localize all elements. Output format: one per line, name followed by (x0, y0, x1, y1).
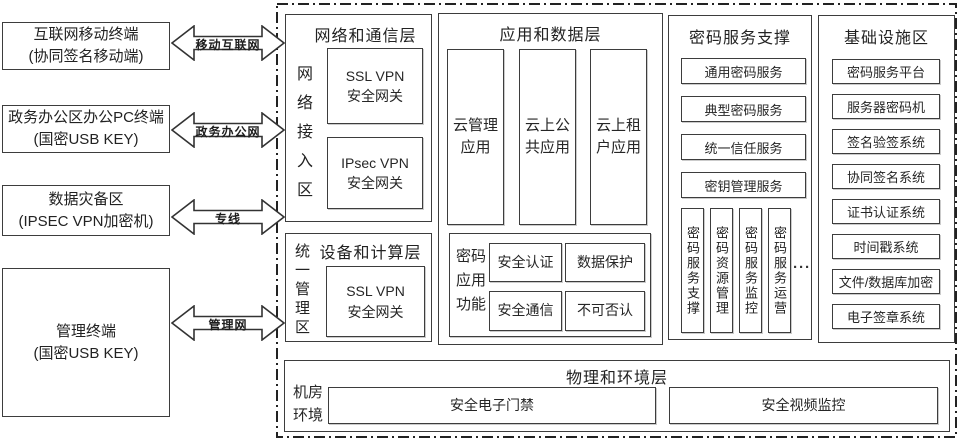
gateway-ssl-vpn: SSL VPN 安全网关 (327, 48, 423, 124)
service-general-crypto: 通用密码服务 (681, 58, 806, 84)
terminal-management: 管理终端 (国密USB KEY) (2, 268, 170, 417)
section-infrastructure-area: 基础设施区 密码服务平台 服务器密码机 签名验签系统 协同签名系统 证书认证系统… (818, 15, 955, 343)
section-title: 密码服务支撑 (669, 24, 811, 48)
network-link-label: 管理网 (171, 316, 285, 333)
crypto-application-functions: 密码 应用 功能 安全认证 数据保护 安全通信 不可否认 (449, 233, 651, 337)
terminal-label: 互联网移动终端 (协同签名移动端) (29, 24, 144, 68)
function-secure-authentication: 安全认证 (489, 243, 562, 282)
terminal-internet-mobile: 互联网移动终端 (协同签名移动端) (2, 22, 170, 70)
service-key-management: 密钥管理服务 (681, 172, 806, 198)
section-title: 基础设施区 (819, 24, 954, 48)
security-architecture-diagram: 互联网移动终端 (协同签名移动端) 政务办公区办公PC终端 (国密USB KEY… (0, 0, 959, 442)
physical-video-surveillance: 安全视频监控 (669, 387, 938, 424)
section-physical-environment-layer: 物理和环境层 机房 环境 安全电子门禁 安全视频监控 (284, 360, 950, 432)
zone-label-network-access: 网络接入区 (290, 65, 314, 215)
terminal-label: 政务办公区办公PC终端 (国密USB KEY) (8, 107, 164, 151)
more-ellipsis: ··· (793, 259, 811, 276)
service-typical-crypto: 典型密码服务 (681, 96, 806, 122)
terminal-label: 管理终端 (国密USB KEY) (33, 321, 138, 365)
operation-crypto-resource-management: 密码资源管理 (710, 208, 733, 333)
terminal-data-disaster-recovery: 数据灾备区 (IPSEC VPN加密机) (2, 185, 170, 236)
operation-crypto-service-operation: 密码服务运营 (768, 208, 791, 333)
system-server-crypto-machine: 服务器密码机 (832, 94, 940, 119)
app-cloud-tenant: 云上租 户应用 (590, 49, 647, 225)
section-title: 应用和数据层 (439, 21, 662, 45)
section-device-computing-layer: 设备和计算层 统一管理区 SSL VPN 安全网关 (285, 233, 432, 342)
system-timestamp: 时间戳系统 (832, 234, 940, 259)
network-link-label: 政务办公网 (171, 123, 285, 140)
crypto-functions-label: 密码 应用 功能 (453, 245, 489, 317)
function-data-protection: 数据保护 (565, 243, 645, 282)
app-cloud-management: 云管理 应用 (447, 49, 504, 225)
function-non-repudiation: 不可否认 (565, 291, 645, 331)
operation-crypto-service-support: 密码服务支撑 (681, 208, 704, 333)
system-signature-verification: 签名验签系统 (832, 129, 940, 154)
section-application-data-layer: 应用和数据层 云管理 应用 云上公 共应用 云上租 户应用 密码 应用 功能 安… (438, 13, 663, 345)
system-crypto-service-platform: 密码服务平台 (832, 59, 940, 84)
system-certificate-authentication: 证书认证系统 (832, 199, 940, 224)
section-title: 网络和通信层 (286, 22, 431, 46)
system-electronic-seal: 电子签章系统 (832, 304, 940, 329)
app-cloud-public: 云上公 共应用 (519, 49, 576, 225)
gateway-ssl-vpn: SSL VPN 安全网关 (326, 266, 425, 337)
system-collaborative-signature: 协同签名系统 (832, 164, 940, 189)
section-crypto-service-support: 密码服务支撑 通用密码服务 典型密码服务 统一信任服务 密钥管理服务 密码服务支… (668, 15, 812, 340)
function-secure-communication: 安全通信 (489, 291, 562, 331)
network-link-label: 专线 (171, 210, 285, 227)
terminal-label: 数据灾备区 (IPSEC VPN加密机) (18, 189, 153, 233)
operation-crypto-service-monitoring: 密码服务监控 (739, 208, 762, 333)
zone-label-machine-room: 机房 环境 (290, 382, 326, 427)
physical-electronic-access-control: 安全电子门禁 (328, 387, 656, 424)
system-file-database-encryption: 文件/数据库加密 (832, 269, 940, 294)
zone-label-unified-management: 统一管理区 (291, 243, 312, 339)
service-unified-trust: 统一信任服务 (681, 134, 806, 160)
section-network-communication-layer: 网络和通信层 网络接入区 SSL VPN 安全网关 IPsec VPN 安全网关 (285, 14, 432, 222)
section-title: 物理和环境层 (285, 364, 949, 388)
network-link-label: 移动互联网 (171, 36, 285, 53)
terminal-gov-office-pc: 政务办公区办公PC终端 (国密USB KEY) (2, 105, 170, 153)
gateway-ipsec-vpn: IPsec VPN 安全网关 (327, 137, 423, 209)
